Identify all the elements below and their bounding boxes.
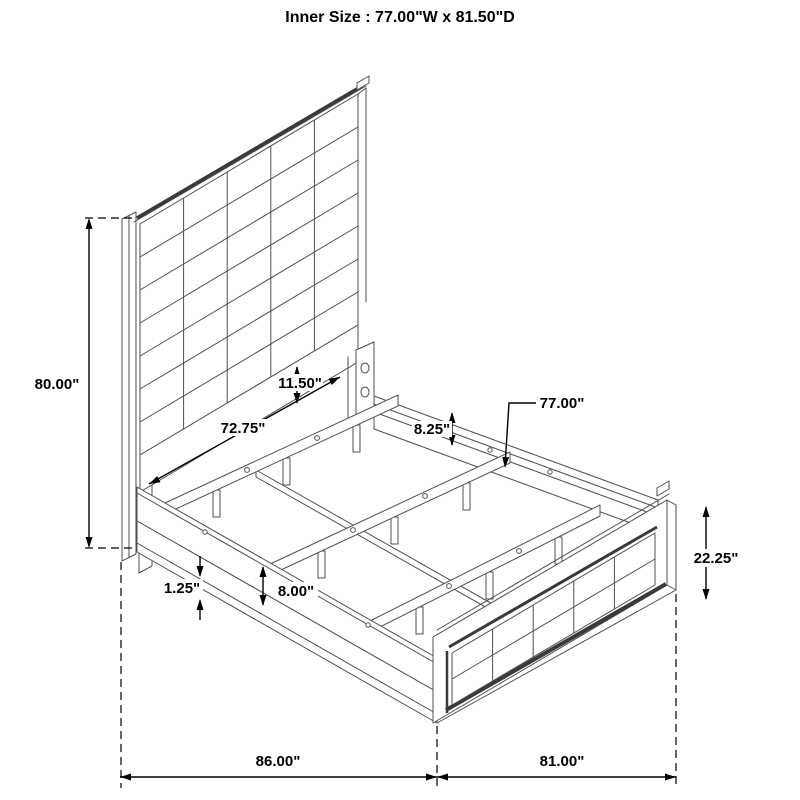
slat-leg <box>416 607 423 634</box>
dim-label-leg-height: 8.00" <box>278 583 314 600</box>
diagram-page: Inner Size : 77.00"W x 81.50"D <box>0 0 800 800</box>
headboard <box>122 76 369 573</box>
dim-label-rail-to-slat: 8.25" <box>414 421 450 438</box>
dim-label-inner-width: 72.75" <box>221 420 266 437</box>
dim-label-overall-width: 81.00" <box>540 753 585 770</box>
footboard <box>433 481 676 723</box>
dim-overall-length: 86.00" <box>120 753 437 781</box>
dim-label-slat-length: 77.00" <box>540 395 585 412</box>
diagram-title: Inner Size : 77.00"W x 81.50"D <box>285 9 515 26</box>
right-side-rail <box>374 396 658 533</box>
dim-label-overall-length: 86.00" <box>256 753 301 770</box>
dim-headboard-height: 80.00" <box>35 218 93 548</box>
dim-label-rail-lip: 1.25" <box>164 580 200 597</box>
dim-overall-width: 81.00" <box>437 753 676 781</box>
dim-label-footboard-height: 22.25" <box>694 550 739 567</box>
slat-leg <box>486 572 493 599</box>
slat-leg <box>318 551 325 578</box>
slat-leg <box>283 458 290 485</box>
bed-assembly-diagram: Inner Size : 77.00"W x 81.50"D <box>0 0 800 800</box>
footboard-post-cap <box>657 481 669 496</box>
rail-mounting-bracket <box>356 342 374 416</box>
dim-footboard-height: 22.25" <box>689 506 743 600</box>
slat-leg <box>353 425 360 452</box>
dim-label-lower-panel: 11.50" <box>278 375 322 392</box>
slat-2 <box>268 452 510 578</box>
dim-label-headboard-height: 80.00" <box>35 376 80 393</box>
slat-leg <box>391 517 398 544</box>
slat-leg <box>213 490 220 517</box>
footboard-right-side <box>667 500 676 590</box>
slat-leg <box>463 483 470 510</box>
